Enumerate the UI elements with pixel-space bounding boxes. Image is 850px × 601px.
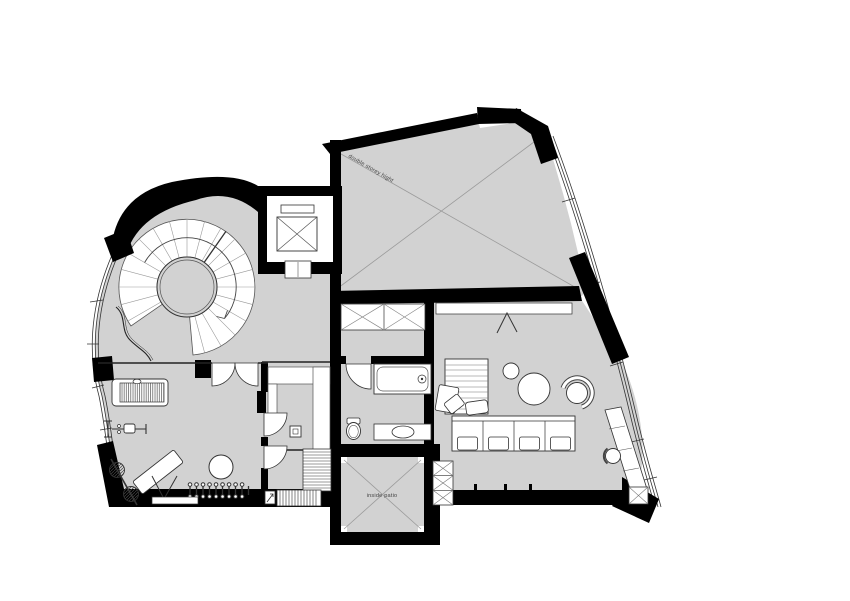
tub-chair-seat [567,383,588,404]
machine-seat [124,424,135,433]
entry-recess [152,497,198,504]
patio-top-wall [330,444,440,457]
wardrobe-left [268,384,277,414]
floor-plan-canvas: inside patio [0,0,850,601]
barbell-plate [124,487,139,502]
living-bottom-wall [433,490,636,505]
basin [392,426,414,438]
side-table-small [503,363,519,379]
lounge-cushion-2 [465,400,489,416]
coffee-table-round [518,373,550,405]
wardrobe-right [313,367,330,451]
machine-knob [118,431,121,434]
closet-wall-seg-2 [261,437,268,446]
desk-chair-seat [606,449,621,464]
sofa-cushion [551,437,571,450]
desk-chair [604,449,621,464]
void-beam-strip [341,304,425,330]
gym-ball [209,455,233,479]
bathtub-drain-dot [421,378,423,380]
closet-stool [290,426,301,437]
sofa-cushion [489,437,509,450]
toilet [347,418,361,440]
bath-top-wall-left [341,356,346,364]
patio-bottom-wall [330,532,440,545]
bathtub [374,364,431,394]
shelving-stack [433,461,453,505]
closet-wall-chunk [257,391,266,413]
wall-tick-1 [474,484,477,491]
treadmill-console [133,379,141,383]
wall-tick-2 [504,484,507,491]
elevator-counterweight [281,205,314,213]
wall-tick-3 [529,484,532,491]
vanity [374,424,431,440]
sliding-opening [436,303,572,314]
barbell-plate [110,463,125,478]
treadmill-belt [120,383,164,402]
machine-knob [118,425,121,428]
beam-strip [341,304,425,330]
floor-plan-drawing: inside patio [0,0,850,601]
sofa-cushion [520,437,540,450]
stair-core [157,257,217,317]
gym-facade-pier-1 [92,356,114,382]
treadmill [112,379,168,406]
inside-patio-label: inside patio [367,493,398,499]
closet-wall-seg-1 [261,362,268,392]
inside-patio: inside patio [341,457,424,532]
sofa-4-seat [452,416,575,451]
stair-flight-lower [277,490,321,506]
sofa-cushion [458,437,478,450]
